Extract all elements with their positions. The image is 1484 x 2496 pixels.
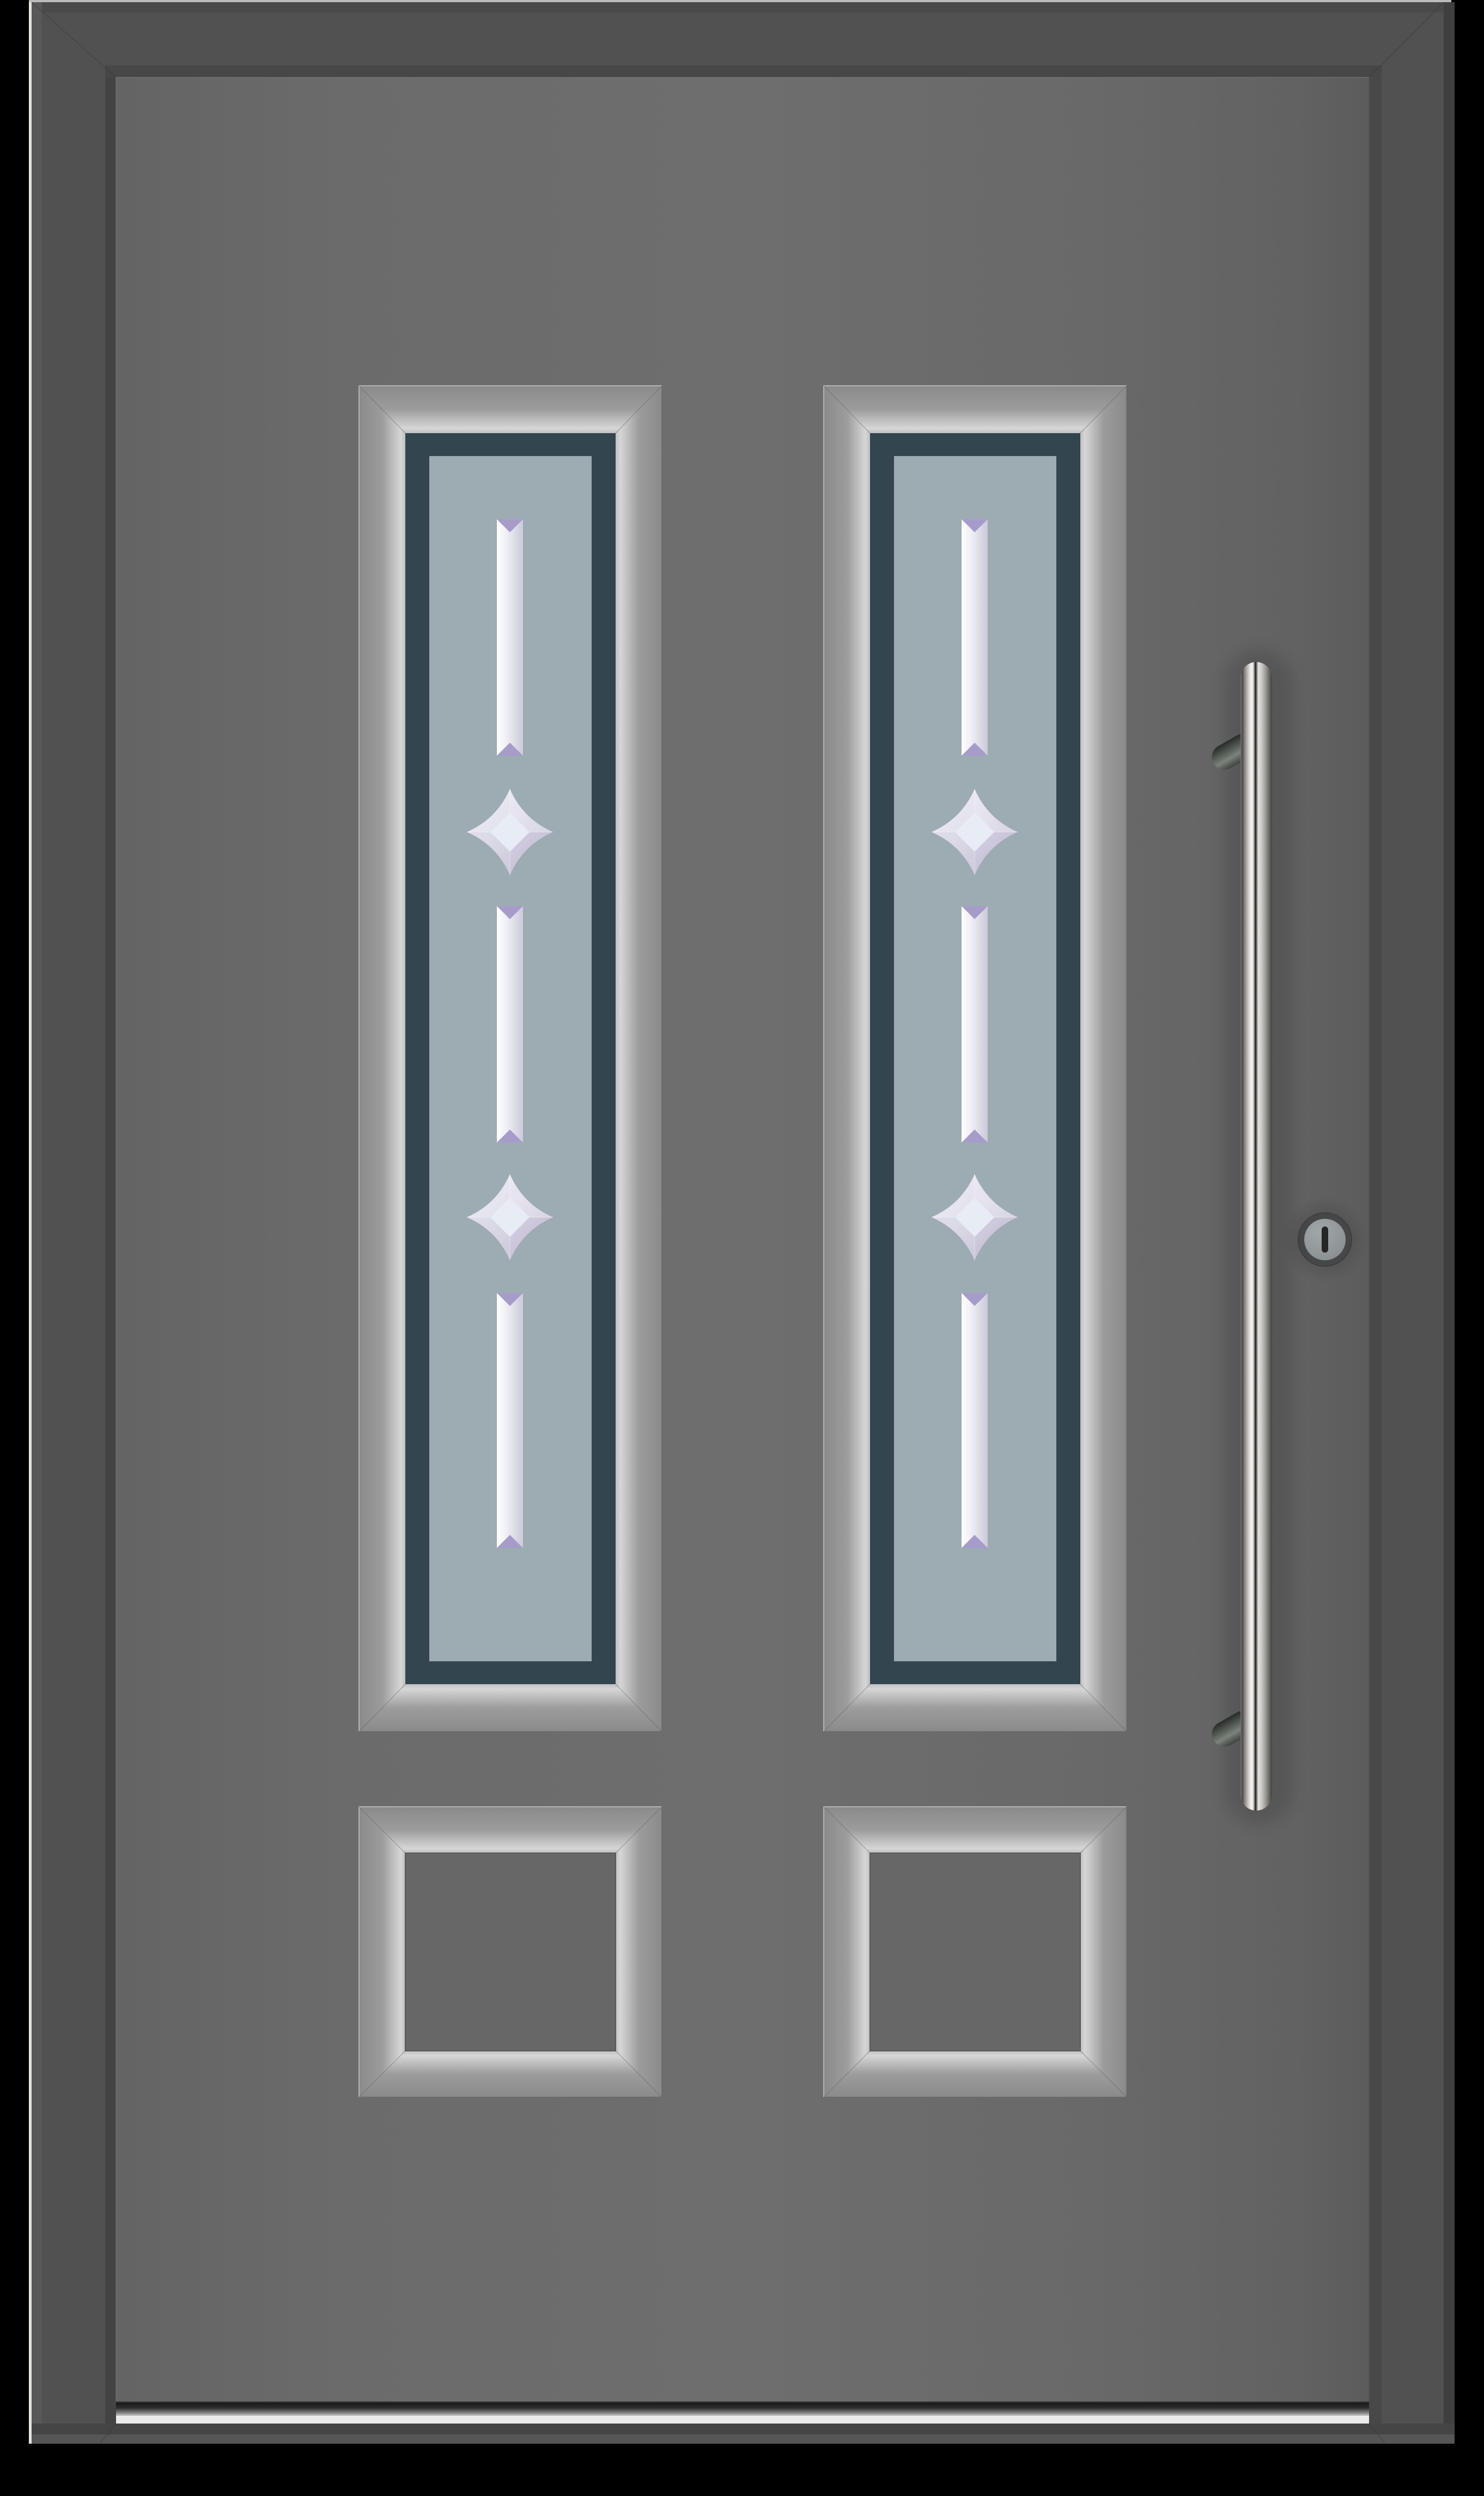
frame-top-strip <box>29 0 1451 2</box>
frame-hinge-edge-strip <box>29 2 32 2444</box>
rebate-left <box>105 65 116 2424</box>
under-door-shadow <box>116 2401 1369 2416</box>
frame-bottom-bevel <box>32 2424 1455 2434</box>
rebate-top <box>105 65 1382 77</box>
frame-right-bevel <box>1444 2 1455 2444</box>
handle-bar[interactable] <box>1240 662 1272 1811</box>
bottom-panel-left <box>359 1807 662 2097</box>
frame-left-band <box>31 2 42 2444</box>
threshold <box>116 2401 1369 2424</box>
bottom-panel-right <box>824 1807 1127 2097</box>
keyhole-icon[interactable] <box>1322 1226 1328 1253</box>
leaf-face <box>116 77 1369 2401</box>
glazed-panel-left <box>359 386 662 1732</box>
rebate-right <box>1369 65 1382 2424</box>
glazed-panel-right <box>824 386 1127 1732</box>
frame-sill-band <box>32 2434 1455 2444</box>
threshold-strip <box>116 2416 1369 2424</box>
door-leaf <box>116 77 1369 2401</box>
lock-cylinder[interactable] <box>1281 1196 1369 1283</box>
door-render-stage <box>0 0 1484 2496</box>
frame-top-bevel <box>32 2 1455 13</box>
threshold-highlight <box>116 2416 1369 2417</box>
